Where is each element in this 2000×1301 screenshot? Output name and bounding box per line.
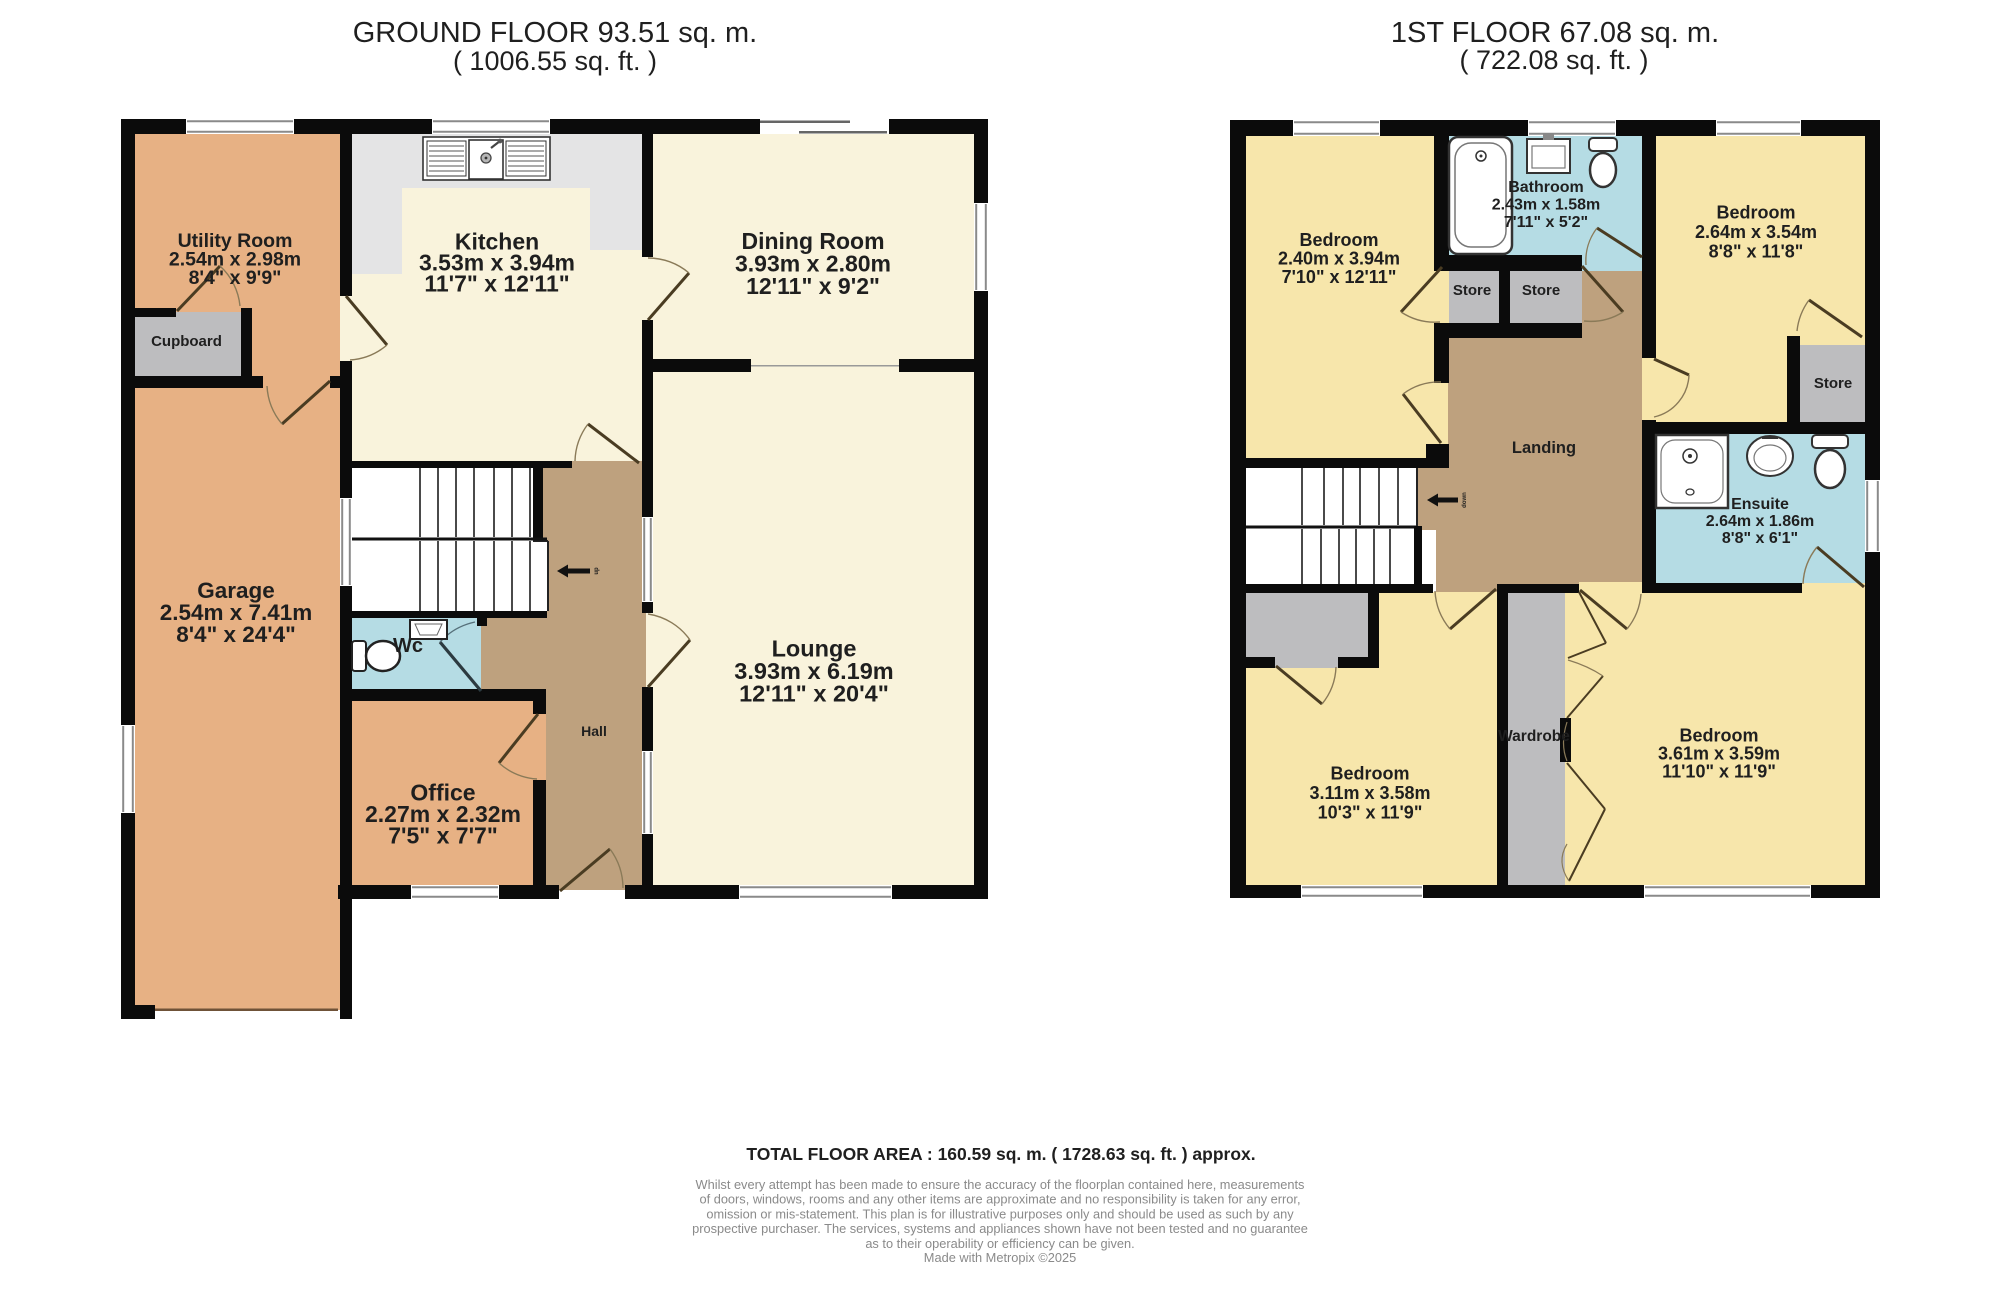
svg-text:Wardrobe: Wardrobe: [1498, 728, 1570, 745]
svg-text:8'4" x 9'9": 8'4" x 9'9": [189, 267, 282, 289]
svg-text:Bedroom: Bedroom: [1330, 764, 1409, 784]
svg-text:10'3" x 11'9": 10'3" x 11'9": [1318, 803, 1423, 823]
svg-text:7'5" x 7'7": 7'5" x 7'7": [388, 822, 498, 848]
svg-text:( 1006.55 sq. ft. ): ( 1006.55 sq. ft. ): [453, 46, 657, 76]
svg-text:GROUND FLOOR 93.51 sq. m.: GROUND FLOOR 93.51 sq. m.: [353, 17, 758, 49]
svg-text:2.64m x 3.54m: 2.64m x 3.54m: [1695, 222, 1817, 242]
svg-text:up: up: [594, 567, 600, 575]
svg-text:12'11" x 9'2": 12'11" x 9'2": [746, 273, 880, 299]
svg-text:7'11" x 5'2": 7'11" x 5'2": [1504, 214, 1588, 231]
svg-text:TOTAL FLOOR AREA : 160.59 sq.: TOTAL FLOOR AREA : 160.59 sq. m. ( 1728.…: [746, 1144, 1255, 1164]
svg-text:11'7" x 12'11": 11'7" x 12'11": [424, 270, 569, 296]
svg-text:2.64m x 1.86m: 2.64m x 1.86m: [1706, 513, 1815, 530]
svg-text:( 722.08 sq. ft. ): ( 722.08 sq. ft. ): [1459, 45, 1648, 75]
svg-text:Store: Store: [1522, 282, 1560, 299]
svg-text:8'4" x 24'4": 8'4" x 24'4": [176, 622, 296, 647]
svg-text:down: down: [1462, 492, 1468, 508]
svg-text:3.61m x 3.59m: 3.61m x 3.59m: [1658, 744, 1780, 764]
svg-text:omission or mis-statement. Thi: omission or mis-statement. This plan is …: [706, 1206, 1294, 1221]
svg-text:8'8" x 6'1": 8'8" x 6'1": [1722, 530, 1798, 547]
svg-text:of doors, windows, rooms and a: of doors, windows, rooms and any other i…: [699, 1192, 1300, 1207]
svg-text:Wc: Wc: [393, 635, 423, 657]
svg-text:Bedroom: Bedroom: [1716, 203, 1795, 223]
svg-text:Bedroom: Bedroom: [1679, 726, 1758, 746]
svg-text:Store: Store: [1814, 375, 1852, 392]
svg-text:Bathroom: Bathroom: [1508, 179, 1584, 196]
svg-text:2.43m x 1.58m: 2.43m x 1.58m: [1492, 197, 1601, 214]
svg-text:Cupboard: Cupboard: [151, 333, 222, 350]
svg-text:2.40m x 3.94m: 2.40m x 3.94m: [1278, 249, 1400, 269]
svg-text:as to their operability or eff: as to their operability or efficiency ca…: [865, 1236, 1134, 1251]
svg-text:prospective purchaser. The ser: prospective purchaser. The services, sys…: [692, 1221, 1308, 1236]
svg-text:3.11m x 3.58m: 3.11m x 3.58m: [1309, 783, 1430, 803]
svg-text:Store: Store: [1453, 282, 1491, 299]
svg-text:8'8" x 11'8": 8'8" x 11'8": [1709, 242, 1804, 262]
svg-text:Hall: Hall: [581, 723, 607, 739]
svg-text:Ensuite: Ensuite: [1731, 496, 1789, 513]
svg-text:Made with Metropix ©2025: Made with Metropix ©2025: [924, 1250, 1076, 1265]
svg-text:12'11" x 20'4": 12'11" x 20'4": [739, 681, 889, 707]
svg-text:11'10" x 11'9": 11'10" x 11'9": [1662, 762, 1776, 782]
svg-text:Whilst every attempt has been: Whilst every attempt has been made to en…: [696, 1177, 1305, 1192]
svg-text:Landing: Landing: [1512, 439, 1576, 457]
svg-text:Bedroom: Bedroom: [1299, 230, 1378, 250]
svg-text:7'10" x 12'11": 7'10" x 12'11": [1282, 267, 1397, 287]
